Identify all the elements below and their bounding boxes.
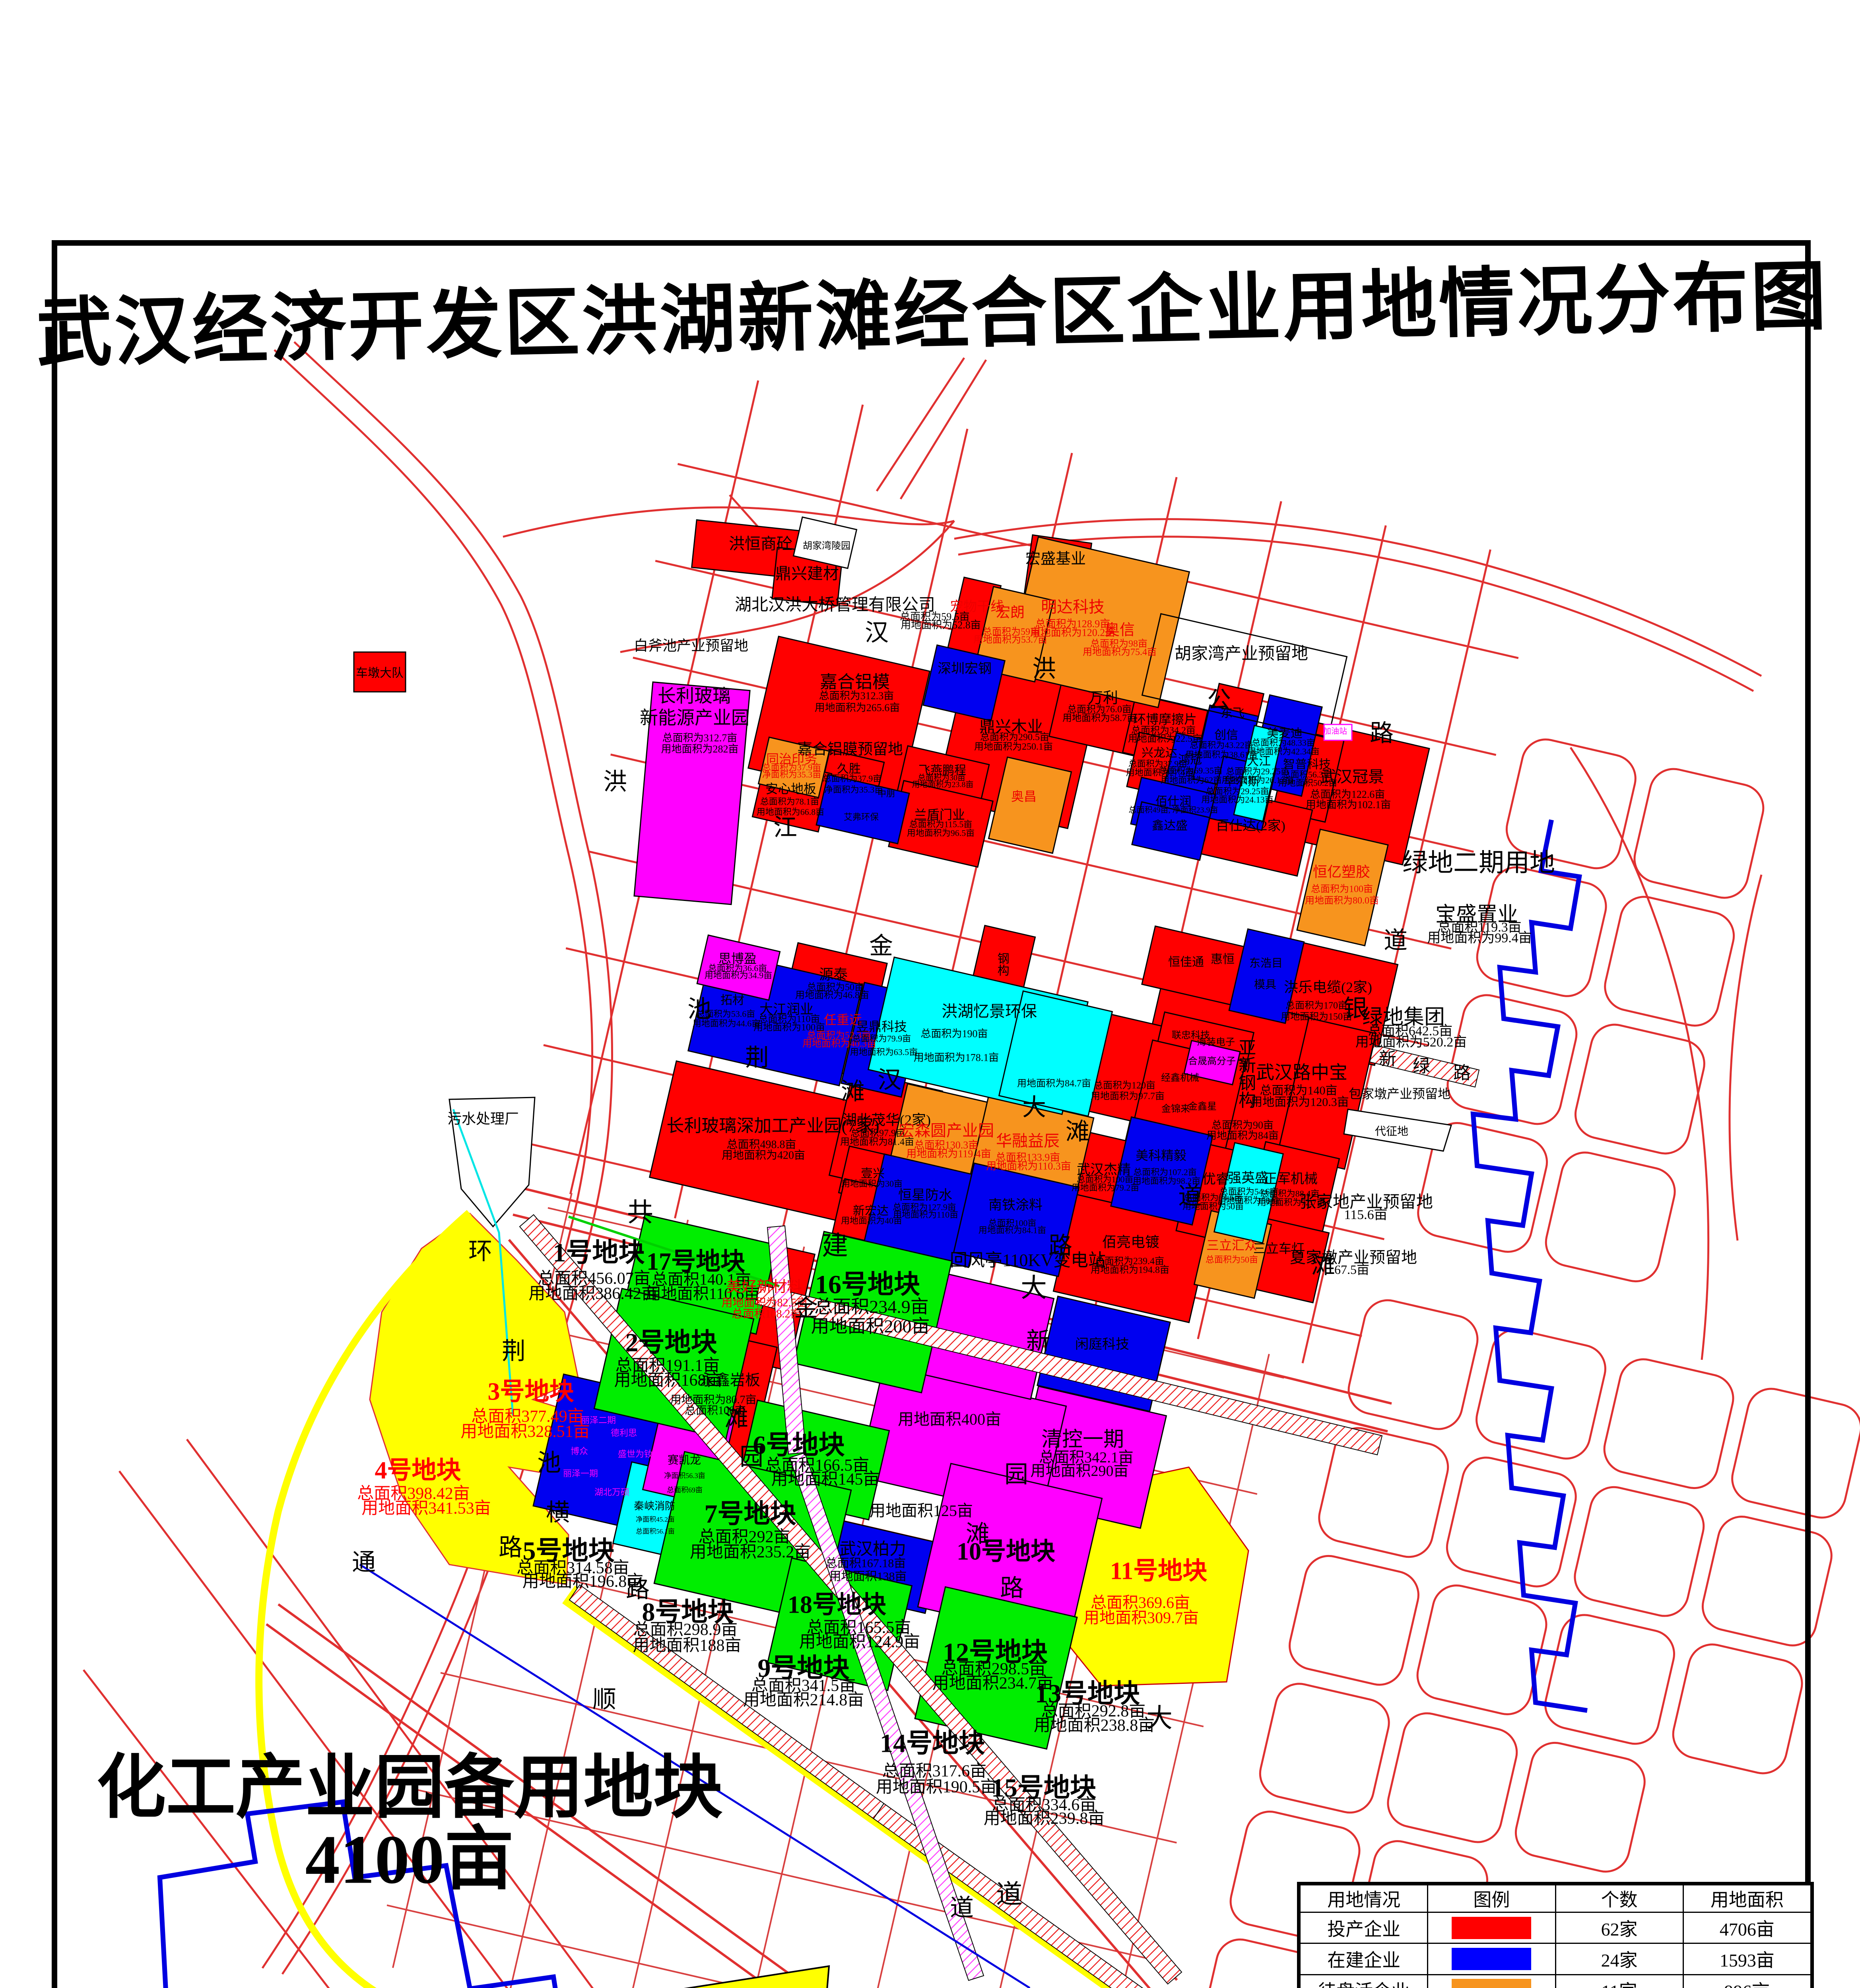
map-label: 绿 [1413,1057,1430,1076]
map-label: 东浩目 [1249,957,1283,969]
map-label: 总面积为50亩 [1206,1255,1258,1264]
legend-header-row: 用地情况图例个数用地面积 [1300,1885,1811,1912]
map-label: 百仕达(2家) [1215,819,1285,833]
map-label: 正军机械 [1264,1172,1318,1186]
map-label: 车墩大队 [356,667,404,679]
map-label: 用地面积为79.2亩 [1072,1183,1140,1192]
map-label: 银 [1344,996,1367,1021]
map-label: 滩 [724,1406,748,1431]
map-label: 创信 [1214,729,1238,742]
map-label: 用地面积125亩 [870,1503,973,1519]
map-label: 用地面积为52.8亩 [901,619,981,630]
legend-count: 11家 [1555,1974,1683,1988]
map-label: 武汉柏力 [839,1541,906,1558]
map-label: 用地面积328.51亩 [460,1423,590,1441]
map-label: 用地面积239.8亩 [984,1810,1105,1827]
map-label: 回风亭110KV变电站 [950,1251,1106,1270]
map-label: 荆 [502,1339,526,1364]
legend-row: 投产企业62家4706亩 [1300,1912,1811,1943]
map-label: 盛世为钕 [618,1449,653,1458]
legend-header-cell: 图例 [1428,1885,1555,1912]
legend-header-cell: 用地情况 [1300,1885,1428,1912]
map-label: 用地面积为110.3亩 [986,1161,1071,1171]
map-sheet: 武汉经济开发区洪湖新滩经合区企业用地情况分布图 化工产业园备用地块 4100亩 … [0,0,1860,1988]
map-label: 用地面积为34.9亩 [705,971,773,980]
map-label: 67.5亩 [1334,1263,1369,1277]
map-label: 园 [1004,1462,1028,1487]
legend-count: 62家 [1555,1912,1683,1943]
map-label: 清控一期 [1041,1429,1124,1451]
map-label: 总面积为100亩 [1311,884,1373,894]
map-label: 武汉冠景 [1320,769,1384,785]
map-label: 共 [627,1199,653,1226]
map-label: 16号地块 [815,1271,920,1298]
map-label: 大 [1022,1095,1046,1120]
map-label: 总面积为79.9亩 [852,1034,911,1043]
map-label: 用地面积145亩 [771,1471,880,1488]
map-label: 用地面积为80.7亩 [670,1394,756,1406]
map-label: 用地面积为97.7亩 [1091,1091,1165,1101]
map-label: 总面积为107.2亩 [1133,1167,1197,1176]
map-label: 总面积为90亩 [1212,1120,1274,1130]
map-label: 池 [537,1451,561,1476]
map-label: 3号地块 [487,1379,574,1405]
map-label: 净面积56.3亩 [664,1472,705,1480]
map-label: 用地面积为102.1亩 [1306,799,1391,810]
map-label: 路 [1000,1576,1024,1601]
map-label: 深圳宏钢 [938,662,992,676]
map-label: 总面积69亩 [667,1487,703,1494]
map-label: 1号地块 [553,1239,645,1266]
map-label: 11号地块 [1110,1558,1208,1584]
map-label: 总面积56.1亩 [636,1528,675,1535]
map-label: 总面积为312.3亩 [819,690,894,701]
map-label: 胡家湾产业预留地 [1175,645,1308,663]
map-label: 池 [687,997,711,1022]
map-label: 汉 [878,1068,901,1093]
map-label: 美科精毅 [1136,1149,1186,1163]
map-label: 洪恒商砼 [729,536,792,552]
map-label: 用地面积为84亩 [1206,1130,1279,1141]
legend-row: 在建企业24家1593亩 [1300,1943,1811,1974]
map-label: 用地面积为80.0亩 [1305,896,1379,906]
map-label: 白斧池产业预留地 [634,639,748,654]
map-label: 大 [1021,1274,1047,1302]
map-label: 用地面积309.7亩 [1083,1609,1199,1626]
map-label: 总面积为115.5亩 [909,819,973,829]
map-label: 秦峡消防 [634,1501,675,1511]
map-label: 经鑫机械 [1161,1073,1199,1083]
map-label: 华融益辰 [996,1133,1060,1149]
map-label: 代征地 [1375,1126,1408,1137]
map-label: 滩 [966,1522,990,1547]
map-label: 钢构 [996,952,1008,976]
map-label: 用地面积为63.5亩 [850,1047,918,1056]
map-label: 环 [468,1239,492,1264]
legend-swatch [1452,1917,1531,1939]
map-label: 用地面积214.8亩 [743,1691,864,1709]
map-label: 总面积298.9亩 [633,1621,738,1639]
map-label: 强英盛 [1228,1171,1268,1186]
map-label: 用地面积235.2亩 [690,1543,811,1561]
reserve-area-label-line2: 4100亩 [305,1803,514,1903]
legend-row: 待盘活企业11家996亩 [1300,1974,1811,1988]
map-label: 园 [740,1445,763,1470]
map-label: 总面积为29.25亩 [1226,767,1289,776]
map-label: 总面积498.8亩 [726,1139,796,1150]
map-label: 道 [1178,1184,1202,1209]
map-label: 拓材 [720,994,744,1007]
map-label: 用地面积238.8亩 [1034,1717,1155,1734]
map-label: 汉 [865,621,889,646]
map-label: 宏朗 [996,605,1025,620]
map-label: 壹兴 [861,1167,885,1180]
legend-area: 4706亩 [1683,1912,1811,1943]
map-label: 用地面积为178.1亩 [914,1052,999,1063]
map-label: 6号地块 [753,1431,845,1459]
map-label: 金锦来 [1161,1104,1190,1114]
map-label: 路 [1048,1234,1072,1259]
map-label: 总面积为122.6亩 [1310,789,1385,800]
map-label: 用地面积为84.1亩 [979,1225,1046,1235]
map-label: 用地面积290亩 [1030,1464,1128,1479]
map-label: 用地面积190.5亩 [876,1778,997,1796]
map-label: 湖北万硕 [594,1487,629,1497]
legend-header-cell: 个数 [1555,1885,1683,1912]
map-label: 环博摩擦片 [1133,713,1197,726]
map-label: 横 [546,1501,570,1526]
map-label: 大江 [1247,755,1271,768]
map-label: 惠恒 [1211,953,1235,966]
map-label: 路 [626,1577,650,1602]
map-label: 顺 [592,1687,616,1712]
map-label: 用地面积为42.34亩 [1247,747,1320,756]
map-label: 用地面积188亩 [633,1637,741,1654]
map-label: 胡家湾陵园 [803,541,850,551]
map-label: 用地面积为62亩 [1161,775,1222,784]
map-label: 鼎兴建材 [775,565,839,582]
map-label: 滩 [1066,1120,1089,1145]
map-label: 恒亿塑胶 [1313,865,1370,880]
map-label: 总面积为37.9亩 [823,774,882,783]
map-label: 用地面积为250.1亩 [974,742,1053,752]
roads-grid-topright [1413,735,1768,1286]
legend-label: 投产企业 [1300,1912,1428,1943]
map-label: 源泰 [819,967,848,982]
map-label: 用地面积386.42亩 [528,1285,658,1303]
map-label: 净面积45.2亩 [636,1516,675,1523]
map-label: 4号地块 [375,1458,461,1483]
map-label: 总面积为312.7亩 [662,732,738,743]
map-label: 总面积为170亩 [1285,1001,1347,1011]
map-label: 用地面积为96.5亩 [907,828,975,837]
map-label: 建 [822,1232,848,1260]
map-label: 用地面积为30亩 [841,1179,903,1188]
map-label: 加油站 [1323,728,1347,736]
map-label: 德利思 [611,1428,637,1437]
map-label: 江 [773,815,797,841]
legend-area: 1593亩 [1683,1943,1811,1974]
legend-swatch [1452,1948,1531,1970]
map-label: 总面积167.18亩 [825,1557,906,1570]
map-label: 兴龙达 [1142,747,1177,759]
map-label: 滩 [1311,1253,1335,1278]
map-label: 用地面积为282亩 [661,744,738,754]
map-label: 新 [1026,1329,1050,1354]
map-label: 佰亮电镀 [1102,1235,1159,1250]
map-label: 丽泽一期 [563,1469,598,1478]
map-label: 路 [499,1536,522,1561]
map-label: 宏盛基业 [1025,551,1086,567]
map-label: 总面积为120亩 [1093,1081,1155,1091]
legend-swatch-cell [1428,1943,1555,1974]
map-label: 总面积为43.22亩 [1190,740,1253,749]
map-label: 洪乐电缆(2家) [1284,980,1372,995]
map-label: 恒佳通 [1168,956,1204,969]
map-label: 金 [869,934,893,959]
map-label: 用地面积341.53亩 [361,1500,491,1517]
map-label: 用地面积为58.7亩 [1062,713,1136,723]
map-label: 金 [794,1296,818,1321]
map-label: 美好新材料 [726,1279,802,1295]
legend-table: 用地情况图例个数用地面积 投产企业62家4706亩在建企业24家1593亩待盘活… [1297,1882,1814,1988]
map-label: 净面积为35.3亩 [762,770,821,779]
map-label: 用地面积为520.2亩 [1355,1035,1467,1050]
map-label: 2号地块 [625,1329,717,1356]
map-label: 用地面积200亩 [811,1317,930,1336]
map-label: 总面积108.2亩 [732,1308,801,1320]
map-label: 用地面积为150亩 [1281,1012,1352,1022]
map-label: 用地面积为265.6亩 [815,702,900,713]
map-label: 滩 [841,1079,865,1105]
legend-header-cell: 用地面积 [1683,1885,1811,1912]
map-label: 路 [1453,1064,1471,1082]
map-label: 海装电子 [1197,1037,1235,1047]
map-label: 奥信 [1105,623,1135,639]
map-label: 用地面积124.9亩 [799,1633,920,1651]
map-label: 用地面积为420亩 [722,1149,805,1161]
legend-swatch [1452,1979,1531,1988]
map-label: 道 [996,1881,1022,1908]
map-label: 宏森圆产业园 [899,1122,994,1139]
map-label: 奥昌 [1011,790,1037,804]
legend-count: 24家 [1555,1943,1683,1974]
map-label: 道 [950,1896,974,1921]
legend-label: 待盘活企业 [1300,1974,1428,1988]
map-label: 合晟高分子 [1188,1056,1236,1066]
map-label: 三立汇众 [1206,1239,1257,1252]
map-label: 污水处理厂 [447,1112,519,1127]
map-label: 荆 [745,1046,769,1071]
legend-label: 在建企业 [1300,1943,1428,1974]
map-label: 用地面积为46.8亩 [795,990,869,1000]
map-label: 优睿 [1202,1173,1229,1187]
map-label: 总面积为140亩 [1260,1084,1338,1097]
map-label: 闲庭科技 [1075,1338,1129,1352]
map-label: 明达科技 [1041,599,1105,615]
map-label: 洪 [1032,657,1056,682]
map-label: 博众 [571,1446,588,1456]
map-label: 用地面积为99.4亩 [1427,931,1532,945]
map-label: 南铁涂料 [988,1198,1043,1213]
map-label: 中朋 [878,789,895,798]
map-label: 总面积为78.1亩 [760,797,819,806]
map-label: 14号地块 [880,1730,985,1757]
map-label: 用地面积为110亩 [893,1210,958,1219]
map-label: 用地面积为84.7亩 [1017,1079,1091,1089]
map-label: 通 [352,1550,376,1575]
map-label: 总面积234.9亩 [814,1297,929,1316]
map-label: 丽泽二期 [581,1415,616,1425]
map-label: 总面积49亩, 净面积23.9亩 [1129,806,1218,815]
map-label: 大 [1146,1705,1173,1732]
map-label: 赛凯龙 [668,1454,701,1466]
map-label: 道 [1384,928,1408,953]
map-label: 总面积为48.33亩 [1252,738,1315,747]
map-label: 用地面积为119.4亩 [906,1148,991,1159]
map-label: 路 [1370,721,1394,746]
map-label: 用地面积400亩 [898,1411,1001,1428]
map-label: 昱鼎科技 [856,1020,907,1034]
map-label: 总面积为190亩 [920,1028,988,1039]
map-label: 7号地块 [705,1500,796,1528]
map-label: 嘉合铝模 [820,673,890,691]
map-label: 长利玻璃 [658,687,731,706]
map-label: 用地面积为23.8亩 [912,781,974,789]
map-label: 用地面积为120.2亩 [1030,627,1116,638]
map-label: 恒星防水 [898,1188,952,1203]
map-label: 净面积为35.3亩 [824,785,883,794]
map-label: 鑫达盛 [1152,819,1188,832]
map-label: 用地面积196.8亩 [522,1573,644,1590]
legend-area: 996亩 [1683,1974,1811,1988]
map-label: 武汉路中宝 [1256,1063,1347,1082]
map-label: 艾弗环保 [844,812,879,821]
map-label: 新能源产业园 [640,709,749,728]
map-label: 永鑫岩板 [700,1373,760,1389]
map-label: 用地面积为120.3亩 [1250,1096,1349,1109]
map-label: 总面积为69.35亩 [1159,766,1223,775]
map-label: 安心地板 [765,782,816,796]
legend-swatch-cell [1428,1974,1555,1988]
map-label: 115.6亩 [1344,1208,1387,1222]
legend-swatch-cell [1428,1912,1555,1943]
map-label: 公 [1207,688,1231,713]
map-label: 用地面积138亩 [829,1570,907,1583]
map-label: 金鑫星 [1188,1102,1217,1112]
map-label: 用地面积为75.4亩 [1083,647,1157,657]
map-label: 18号地块 [788,1592,886,1618]
map-label: 模具 [1254,979,1276,990]
map-label: 包家墩产业预留地 [1349,1087,1450,1101]
map-label: 绿地二期用地 [1402,849,1555,876]
map-label: 总面积为290.5亩 [980,732,1049,742]
map-label: 洪 [603,770,627,795]
map-label: 总面积317.6亩 [882,1763,987,1780]
map-label: 洪湖忆景环保 [942,1003,1037,1020]
map-label: 用地面积为24.13亩 [1201,795,1274,804]
map-label: 新 [1379,1050,1396,1068]
